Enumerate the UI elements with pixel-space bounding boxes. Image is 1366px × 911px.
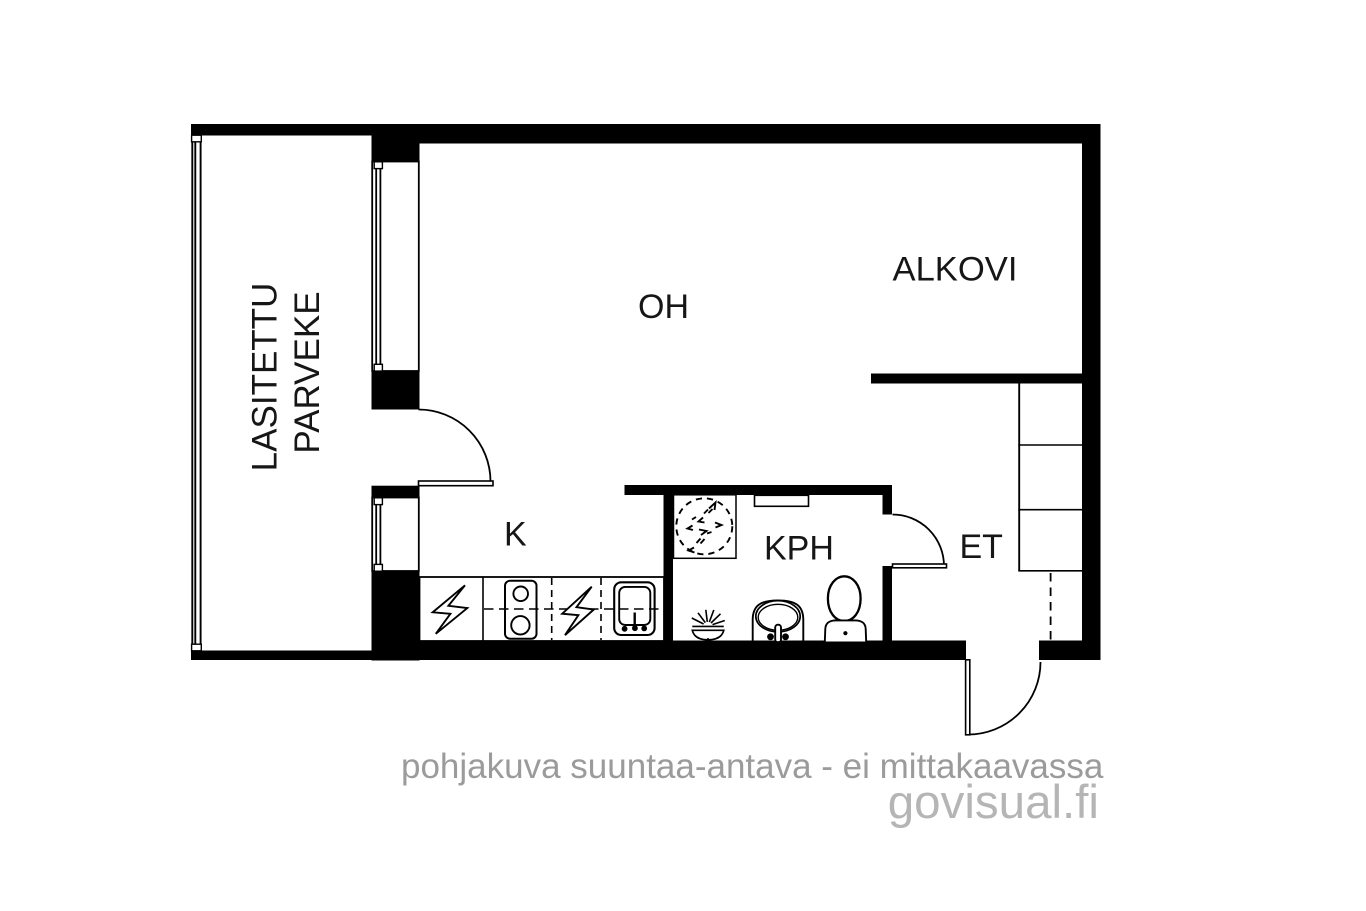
svg-text:ET: ET [960,528,1003,566]
svg-text:KPH: KPH [764,530,834,568]
svg-text:ALKOVI: ALKOVI [893,251,1018,289]
svg-text:OH: OH [638,288,689,326]
svg-text:govisual.fi: govisual.fi [888,776,1099,829]
svg-text:LASITETTU: LASITETTU [246,283,285,472]
svg-text:PARVEKE: PARVEKE [288,291,327,453]
svg-text:K: K [504,516,527,554]
